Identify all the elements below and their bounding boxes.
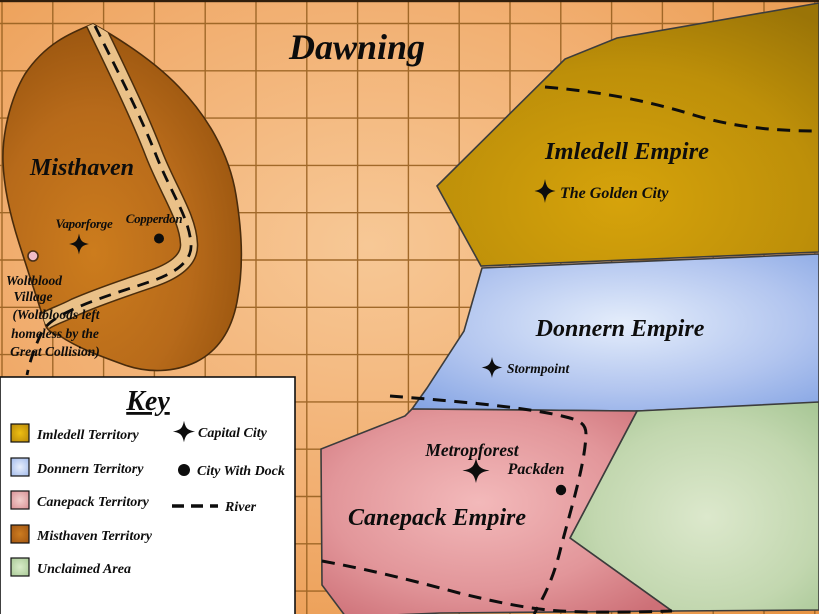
svg-text:River: River: [224, 500, 257, 515]
svg-text:Imledell Territory: Imledell Territory: [36, 428, 140, 443]
svg-text:Copperdon: Copperdon: [126, 211, 183, 226]
svg-text:Capital City: Capital City: [198, 426, 268, 441]
svg-text:Misthaven: Misthaven: [29, 155, 134, 181]
svg-text:Village: Village: [13, 289, 52, 304]
svg-text:Vaporforge: Vaporforge: [56, 216, 113, 231]
svg-text:The Golden City: The Golden City: [560, 185, 669, 202]
svg-text:Stormpoint: Stormpoint: [507, 361, 571, 376]
svg-text:Unclaimed Area: Unclaimed Area: [37, 562, 131, 577]
svg-text:Great Collision): Great Collision): [10, 344, 100, 359]
svg-text:Key: Key: [125, 386, 170, 417]
svg-text:City With Dock: City With Dock: [197, 464, 285, 479]
svg-text:Woltblood: Woltblood: [6, 273, 62, 288]
svg-text:Donnern Empire: Donnern Empire: [535, 316, 705, 342]
svg-text:(Woltbloods left: (Woltbloods left: [12, 307, 100, 322]
svg-text:Metropforest: Metropforest: [424, 440, 519, 460]
svg-text:Misthaven Territory: Misthaven Territory: [36, 529, 153, 544]
svg-text:Canepack Empire: Canepack Empire: [348, 505, 526, 531]
svg-text:Imledell Empire: Imledell Empire: [544, 138, 709, 165]
svg-text:Dawning: Dawning: [288, 27, 425, 67]
svg-text:Packden: Packden: [507, 461, 565, 478]
svg-text:Canepack Territory: Canepack Territory: [37, 495, 150, 510]
svg-text:homeless by the: homeless by the: [11, 326, 99, 341]
svg-text:Donnern Territory: Donnern Territory: [36, 462, 144, 477]
